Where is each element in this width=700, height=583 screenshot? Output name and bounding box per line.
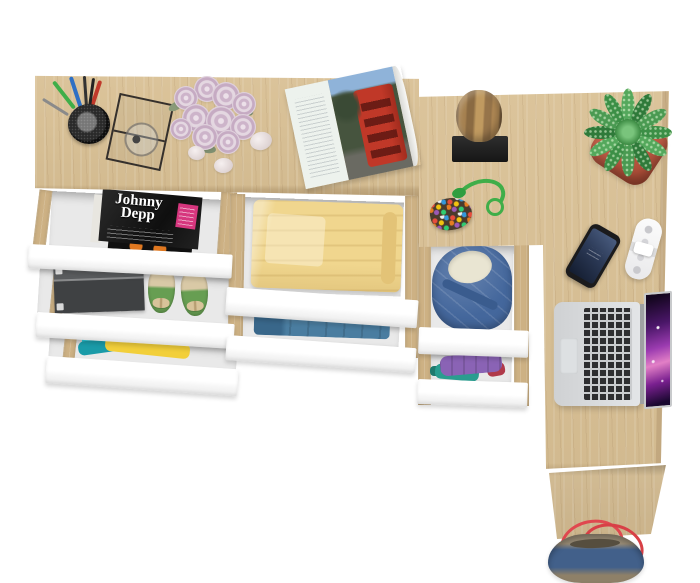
blanket-pocket <box>265 213 326 267</box>
keychain-loop <box>486 198 504 216</box>
shoebox-lid-line <box>54 277 144 282</box>
magazine-badge-lines <box>178 206 195 226</box>
magazine-cover-johnny-depp: Johnny Depp <box>98 189 202 250</box>
organizer-clip <box>633 241 655 258</box>
tote-bag <box>546 512 650 583</box>
shoe-bow <box>186 301 204 312</box>
pen-cup-group <box>54 76 118 148</box>
bag-body <box>548 534 644 583</box>
plant-center <box>615 119 641 145</box>
bead-keychain <box>428 180 504 234</box>
rose-bouquet <box>168 76 258 158</box>
cabinet-rail <box>405 196 419 358</box>
folded-yellow-blanket <box>251 199 404 292</box>
bus-windows <box>360 94 402 159</box>
cabinet-rail <box>514 240 529 406</box>
laptop-screen <box>644 291 672 409</box>
rose <box>232 92 256 116</box>
laptop <box>552 290 668 410</box>
tray-glass <box>121 119 161 159</box>
shoe-bow <box>152 298 169 309</box>
drawer-front <box>417 379 528 408</box>
shoebox-corner <box>57 303 64 310</box>
bag-opening-slit <box>570 538 620 549</box>
log-sculpture <box>450 88 512 168</box>
pen-cup <box>68 104 110 144</box>
blanket-roll-edge <box>381 212 398 284</box>
magazine-caption-lines <box>107 225 174 243</box>
magazine-title: Johnny Depp <box>106 192 170 223</box>
phone-screen-text <box>586 246 602 260</box>
rose <box>216 130 240 154</box>
magazine-badge <box>175 203 198 230</box>
rose <box>170 118 192 140</box>
magazine-title-line2: Depp <box>120 205 155 224</box>
log-wood <box>456 90 502 142</box>
denim-jacket <box>432 246 512 330</box>
laptop-trackpad <box>560 338 578 374</box>
succulent-plant <box>584 86 674 190</box>
product-photo-scene: Johnny Depp <box>0 0 700 583</box>
laptop-keyboard <box>584 308 632 400</box>
drawer-front <box>418 327 529 358</box>
